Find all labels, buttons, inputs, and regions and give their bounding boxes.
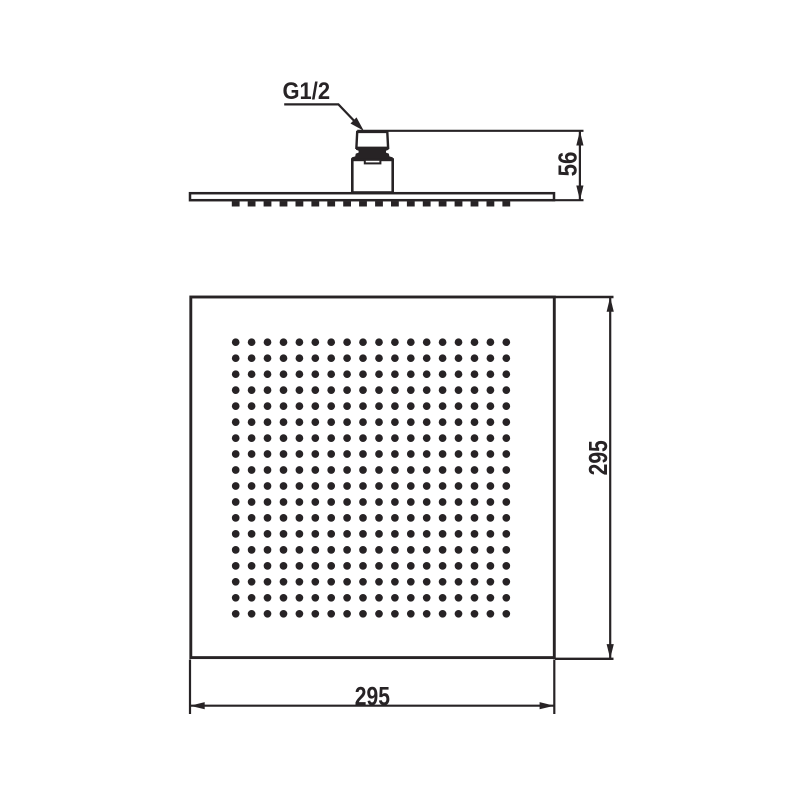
svg-text:56: 56 — [555, 152, 583, 177]
svg-text:295: 295 — [585, 440, 613, 475]
svg-text:295: 295 — [355, 683, 390, 711]
svg-text:G1/2: G1/2 — [283, 78, 331, 105]
